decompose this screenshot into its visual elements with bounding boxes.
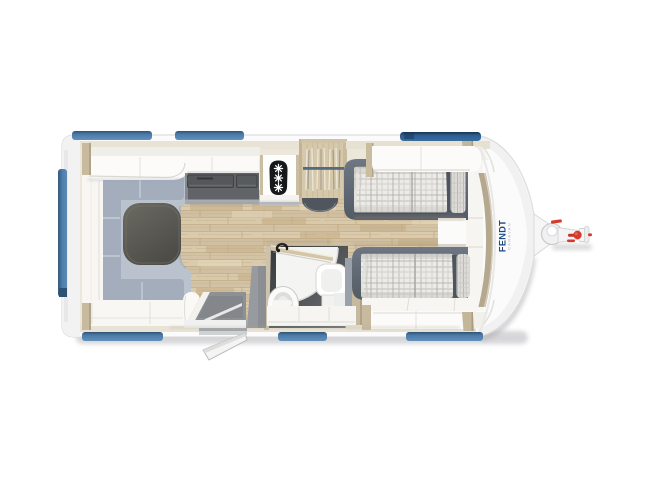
svg-text:CARAVAN: CARAVAN — [507, 222, 512, 250]
